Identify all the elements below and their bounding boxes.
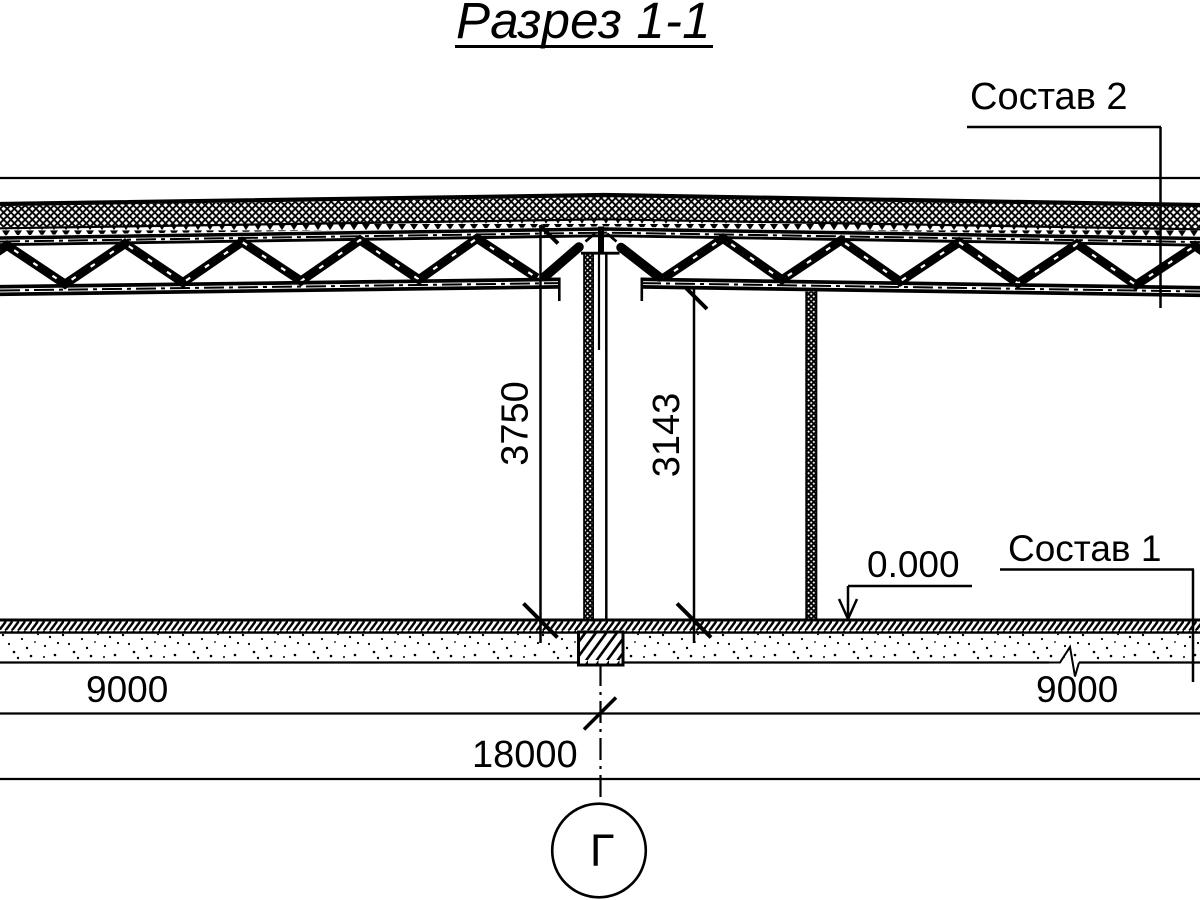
svg-text:9000: 9000 [1036, 669, 1118, 710]
svg-text:3750: 3750 [495, 381, 537, 466]
svg-text:Разрез 1-1: Разрез 1-1 [456, 0, 711, 49]
svg-text:Состав 1: Состав 1 [1008, 528, 1161, 569]
svg-text:9000: 9000 [86, 669, 168, 710]
svg-text:3143: 3143 [646, 393, 688, 478]
svg-text:Состав 2: Состав 2 [970, 76, 1128, 118]
svg-text:18000: 18000 [472, 734, 578, 776]
svg-text:Г: Г [590, 825, 614, 876]
svg-text:0.000: 0.000 [867, 544, 960, 585]
